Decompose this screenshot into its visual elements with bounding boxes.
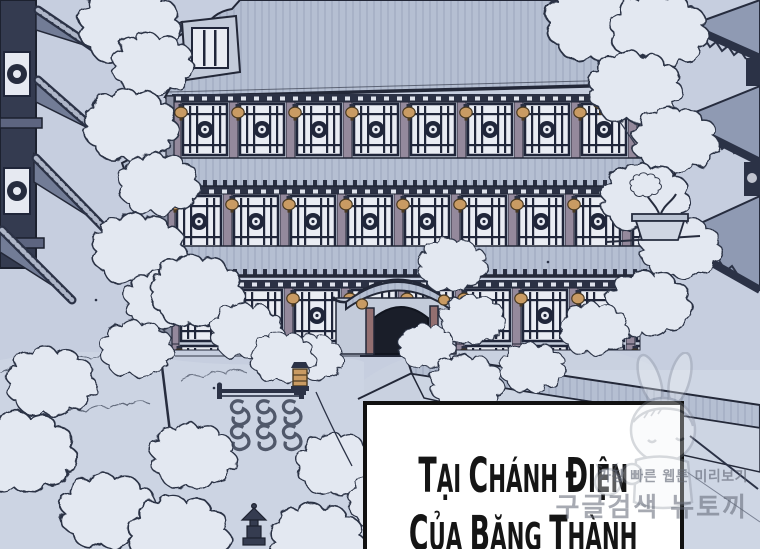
site-watermark: 가장 빠른 웹툰 미리보기 구글검색 뉴토끼 [556,466,749,524]
watermark-sitename: 구글검색 뉴토끼 [556,487,749,524]
webtoon-panel: TẠI CHÁNH ĐIỆN CỦA BĂNG THÀNH 가장 빠른 웹툰 미… [0,0,760,549]
window-row-1 [166,94,653,158]
window-row-2 [160,187,657,246]
eave-band-1 [122,155,675,187]
stone-lantern-small [291,362,309,395]
watermark-tagline: 가장 빠른 웹툰 미리보기 [556,466,749,486]
